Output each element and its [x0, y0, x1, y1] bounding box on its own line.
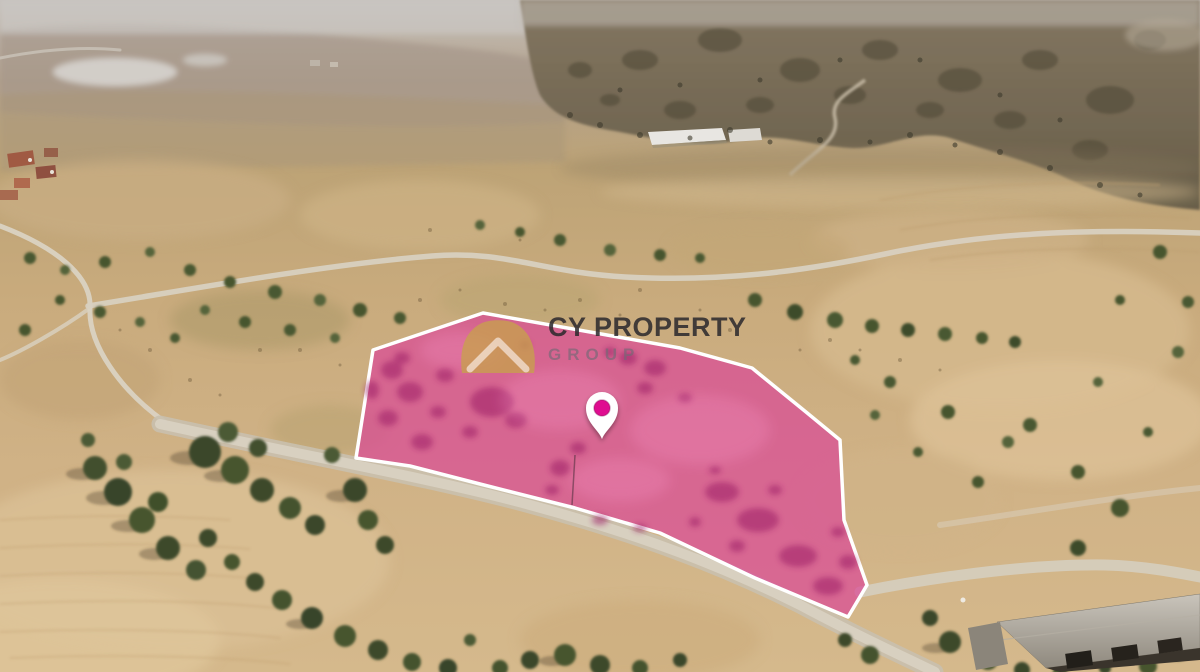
aerial-photo-background: [0, 0, 1200, 672]
aerial-property-photo: CY PROPERTY GROUP: [0, 0, 1200, 672]
hillside-ridge: [520, 0, 1200, 210]
